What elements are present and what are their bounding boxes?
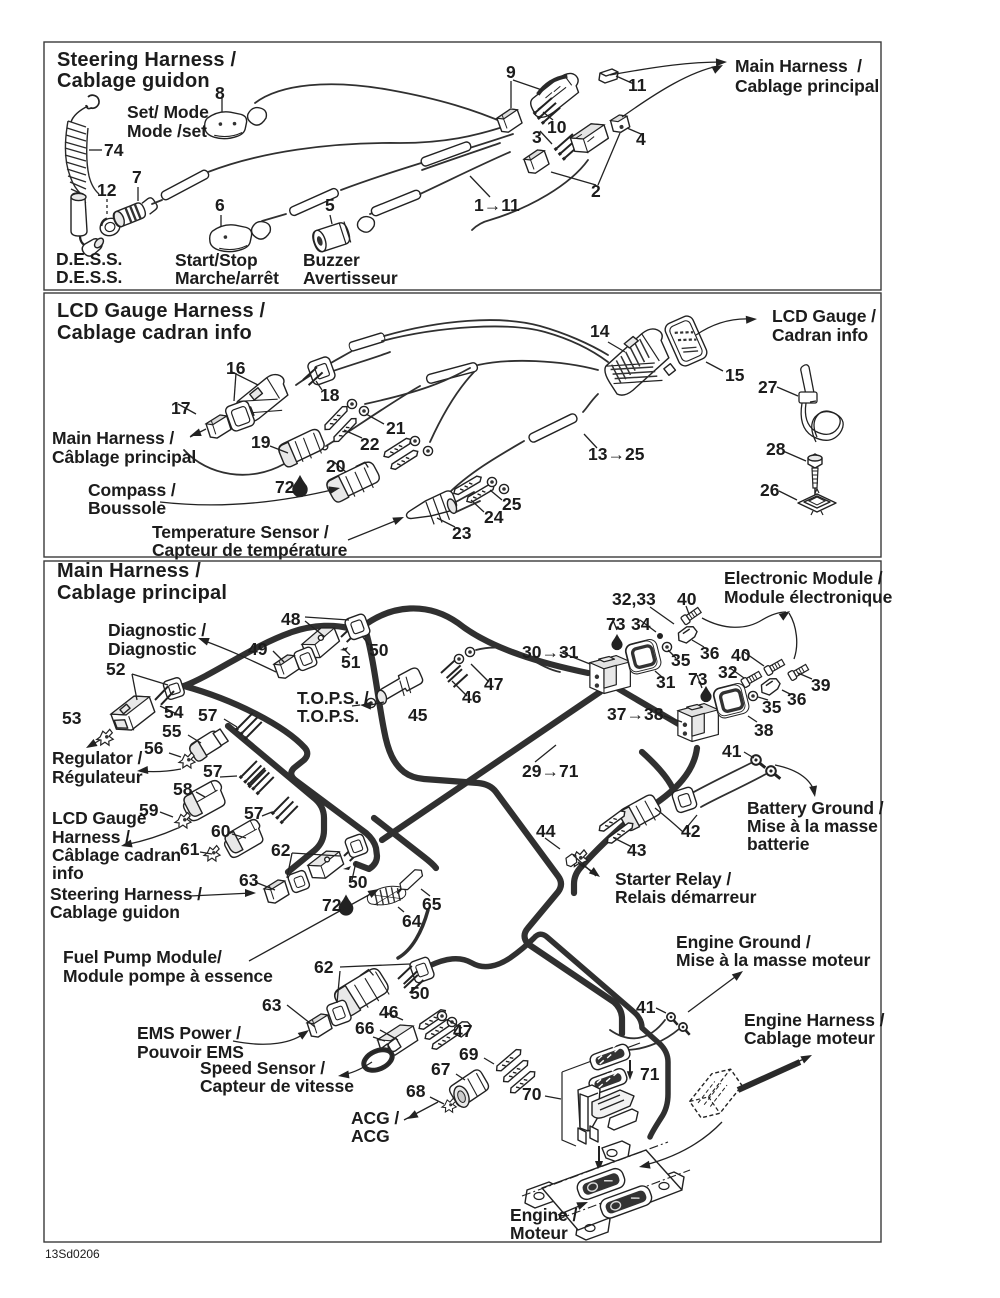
svg-text:Moteur: Moteur: [510, 1223, 568, 1243]
svg-text:46: 46: [379, 1002, 399, 1022]
svg-text:Cablage principal: Cablage principal: [57, 582, 227, 604]
svg-text:21: 21: [386, 418, 406, 438]
svg-text:23: 23: [452, 523, 472, 543]
svg-text:60: 60: [211, 821, 231, 841]
svg-text:Starter Relay /: Starter Relay /: [615, 869, 731, 889]
svg-text:44: 44: [536, 821, 556, 841]
svg-text:53: 53: [62, 708, 82, 728]
svg-text:70: 70: [522, 1084, 542, 1104]
svg-text:42: 42: [681, 821, 701, 841]
svg-text:67: 67: [431, 1059, 450, 1079]
svg-text:57: 57: [244, 803, 263, 823]
svg-text:Module électronique: Module électronique: [724, 587, 893, 607]
svg-text:LCD Gauge Harness /: LCD Gauge Harness /: [57, 300, 266, 322]
svg-text:72: 72: [322, 895, 342, 915]
svg-text:Engine /: Engine /: [510, 1205, 577, 1225]
svg-text:Capteur de vitesse: Capteur de vitesse: [200, 1076, 354, 1096]
svg-text:25: 25: [502, 494, 522, 514]
svg-text:49: 49: [248, 639, 268, 659]
svg-text:Cablage principal: Cablage principal: [735, 76, 879, 96]
svg-text:Diagnostic: Diagnostic: [108, 639, 197, 659]
svg-text:18: 18: [320, 385, 340, 405]
svg-text:69: 69: [459, 1044, 479, 1064]
svg-text:64: 64: [402, 911, 422, 931]
svg-text:54: 54: [164, 702, 184, 722]
svg-text:26: 26: [760, 480, 780, 500]
svg-text:6: 6: [215, 195, 225, 215]
svg-text:55: 55: [162, 721, 182, 741]
svg-text:LCD Gauge /: LCD Gauge /: [772, 306, 876, 326]
svg-text:38: 38: [754, 720, 774, 740]
svg-text:36: 36: [700, 643, 720, 663]
svg-text:57: 57: [203, 761, 222, 781]
svg-text:4: 4: [636, 129, 646, 149]
svg-text:batterie: batterie: [747, 834, 810, 854]
svg-text:20: 20: [326, 456, 346, 476]
svg-text:41: 41: [636, 997, 656, 1017]
svg-text:EMS Power /: EMS Power /: [137, 1023, 241, 1043]
svg-text:16: 16: [226, 358, 246, 378]
svg-text:32,33: 32,33: [612, 589, 656, 609]
svg-text:Câblage principal: Câblage principal: [52, 447, 196, 467]
svg-text:57: 57: [198, 705, 217, 725]
svg-text:37→38: 37→38: [607, 704, 664, 724]
svg-text:28: 28: [766, 439, 786, 459]
svg-text:14: 14: [590, 321, 610, 341]
svg-text:1→11: 1→11: [474, 195, 520, 215]
svg-text:D.E.S.S.: D.E.S.S.: [56, 267, 122, 287]
svg-text:31: 31: [656, 672, 676, 692]
svg-text:40: 40: [677, 589, 697, 609]
svg-text:Cablage guidon: Cablage guidon: [57, 70, 210, 92]
svg-text:48: 48: [281, 609, 301, 629]
svg-text:Main Harness /: Main Harness /: [57, 560, 201, 582]
svg-text:39: 39: [811, 675, 831, 695]
svg-text:Mode /set: Mode /set: [127, 121, 207, 141]
svg-text:2: 2: [591, 181, 601, 201]
svg-text:9: 9: [506, 62, 516, 82]
svg-text:11: 11: [628, 75, 647, 95]
svg-text:52: 52: [106, 659, 126, 679]
svg-text:29→71: 29→71: [522, 761, 579, 781]
svg-text:Engine Harness /: Engine Harness /: [744, 1010, 885, 1030]
svg-text:Buzzer: Buzzer: [303, 250, 360, 270]
svg-text:46: 46: [462, 687, 482, 707]
svg-text:50: 50: [410, 983, 430, 1003]
svg-text:35: 35: [762, 697, 782, 717]
svg-text:24: 24: [484, 507, 504, 527]
svg-text:68: 68: [406, 1081, 426, 1101]
svg-text:63: 63: [262, 995, 282, 1015]
svg-text:Steering Harness /: Steering Harness /: [50, 884, 202, 904]
svg-text:Battery Ground /: Battery Ground /: [747, 798, 884, 818]
svg-text:Avertisseur: Avertisseur: [303, 268, 398, 288]
svg-text:Cablage moteur: Cablage moteur: [744, 1028, 875, 1048]
svg-text:50: 50: [369, 640, 389, 660]
svg-text:5: 5: [325, 195, 335, 215]
svg-text:Régulateur: Régulateur: [52, 767, 143, 787]
svg-text:LCD Gauge: LCD Gauge: [52, 808, 147, 828]
svg-text:Steering Harness /: Steering Harness /: [57, 49, 236, 71]
svg-text:D.E.S.S.: D.E.S.S.: [56, 249, 122, 269]
svg-text:47: 47: [484, 674, 503, 694]
svg-text:32: 32: [718, 662, 738, 682]
svg-text:73: 73: [606, 614, 626, 634]
svg-text:Start/Stop: Start/Stop: [175, 250, 258, 270]
svg-text:Marche/arrêt: Marche/arrêt: [175, 268, 279, 288]
svg-text:17: 17: [171, 398, 190, 418]
svg-text:ACG /: ACG /: [351, 1108, 399, 1128]
svg-text:34: 34: [631, 614, 651, 634]
svg-text:3: 3: [532, 127, 542, 147]
svg-text:Mise à la masse moteur: Mise à la masse moteur: [676, 950, 871, 970]
svg-text:Engine Ground /: Engine Ground /: [676, 932, 811, 952]
svg-text:Câblage cadran: Câblage cadran: [52, 845, 181, 865]
svg-text:12: 12: [97, 180, 117, 200]
svg-text:19: 19: [251, 432, 271, 452]
svg-text:13→25: 13→25: [588, 444, 645, 464]
svg-text:Capteur de température: Capteur de température: [152, 540, 348, 560]
svg-text:Electronic Module /: Electronic Module /: [724, 568, 883, 588]
svg-text:Boussole: Boussole: [88, 498, 166, 518]
svg-text:Temperature Sensor /: Temperature Sensor /: [152, 522, 329, 542]
svg-text:73: 73: [688, 669, 708, 689]
svg-text:T.O.P.S.: T.O.P.S.: [297, 706, 359, 726]
svg-text:63: 63: [239, 870, 259, 890]
svg-text:T.O.P.S. /: T.O.P.S. /: [297, 688, 369, 708]
svg-text:65: 65: [422, 894, 442, 914]
svg-text:50: 50: [348, 872, 368, 892]
svg-text:74: 74: [104, 140, 124, 160]
svg-text:Compass /: Compass /: [88, 480, 176, 500]
svg-text:56: 56: [144, 738, 164, 758]
svg-text:Mise à la masse: Mise à la masse: [747, 816, 878, 836]
svg-text:45: 45: [408, 705, 428, 725]
svg-text:41: 41: [722, 741, 742, 761]
svg-text:66: 66: [355, 1018, 375, 1038]
svg-text:Cadran info: Cadran info: [772, 325, 868, 345]
svg-text:27: 27: [758, 377, 777, 397]
svg-text:13Sd0206: 13Sd0206: [45, 1247, 100, 1261]
svg-text:61: 61: [180, 839, 200, 859]
svg-text:58: 58: [173, 779, 193, 799]
svg-text:36: 36: [787, 689, 807, 709]
svg-text:Module pompe à essence: Module pompe à essence: [63, 966, 273, 986]
svg-text:72: 72: [275, 477, 295, 497]
svg-text:Cablage cadran info: Cablage cadran info: [57, 322, 252, 344]
svg-text:7: 7: [132, 167, 142, 187]
svg-text:Regulator /: Regulator /: [52, 748, 143, 768]
svg-text:35: 35: [671, 650, 691, 670]
svg-text:Diagnostic /: Diagnostic /: [108, 620, 206, 640]
svg-text:15: 15: [725, 365, 745, 385]
svg-text:Harness /: Harness /: [52, 827, 130, 847]
svg-text:Relais démarreur: Relais démarreur: [615, 887, 757, 907]
svg-text:info: info: [52, 863, 84, 883]
svg-text:Speed Sensor /: Speed Sensor /: [200, 1058, 325, 1078]
svg-text:Cablage guidon: Cablage guidon: [50, 902, 180, 922]
svg-text:51: 51: [341, 652, 361, 672]
svg-text:43: 43: [627, 840, 647, 860]
svg-text:62: 62: [314, 957, 334, 977]
svg-text:30→31: 30→31: [522, 642, 579, 662]
svg-text:62: 62: [271, 840, 291, 860]
svg-text:71: 71: [640, 1064, 660, 1084]
svg-text:ACG: ACG: [351, 1126, 390, 1146]
svg-text:Fuel Pump Module/: Fuel Pump Module/: [63, 947, 222, 967]
svg-text:22: 22: [360, 434, 380, 454]
svg-text:Main Harness /: Main Harness /: [52, 428, 174, 448]
svg-text:47: 47: [453, 1021, 472, 1041]
svg-text:8: 8: [215, 83, 225, 103]
svg-text:Set/ Mode: Set/ Mode: [127, 102, 209, 122]
svg-text:10: 10: [547, 117, 567, 137]
svg-text:Main Harness /: Main Harness /: [735, 56, 862, 76]
